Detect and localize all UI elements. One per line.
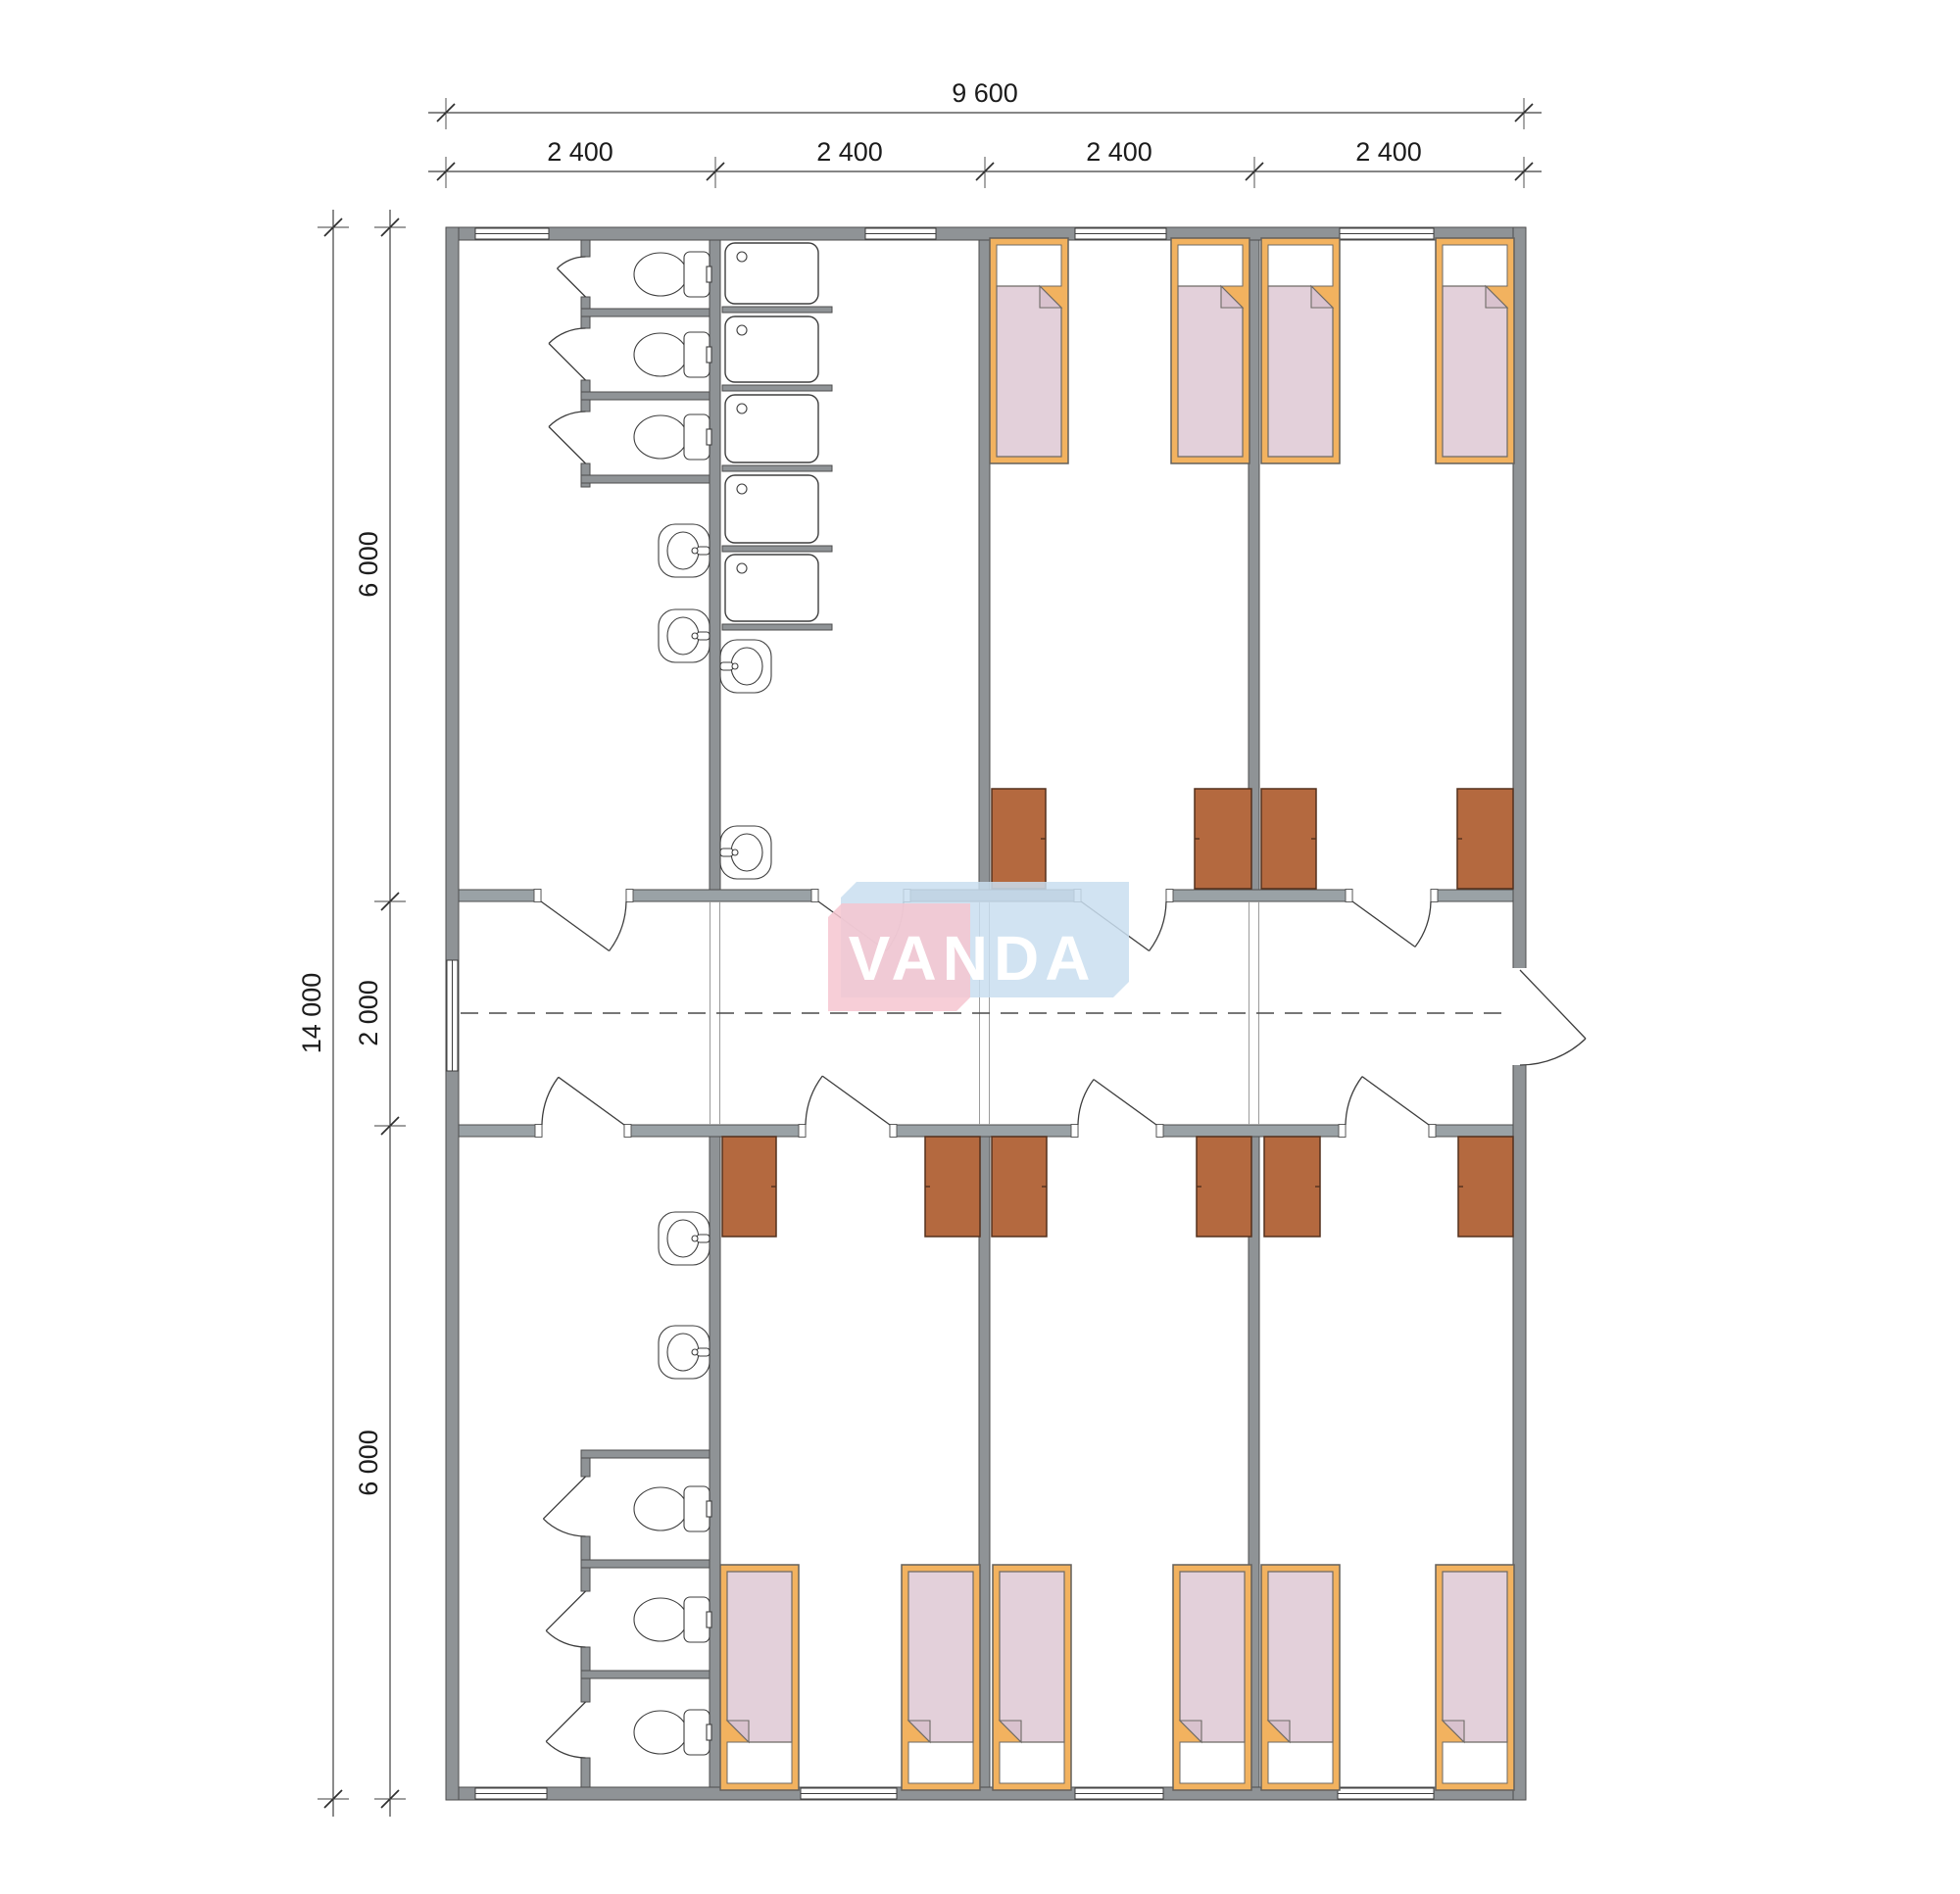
wardrobe: [1261, 789, 1316, 889]
dim-label-zone: 6 000: [354, 531, 383, 598]
door-swing: [549, 412, 586, 463]
door-swing: [1078, 1080, 1156, 1125]
bed: [1261, 238, 1340, 463]
sink: [659, 1212, 710, 1265]
sink: [720, 826, 771, 879]
bed: [902, 1565, 980, 1790]
window: [801, 1788, 897, 1799]
bed: [1436, 1565, 1514, 1790]
sink: [659, 524, 710, 577]
wardrobe: [1458, 1137, 1513, 1237]
floor-plan-canvas: 9 600 2 400 2 400 2 400 2 400 14 000 6 0…: [0, 0, 1960, 1894]
wardrobe: [1264, 1137, 1320, 1237]
window: [1075, 1788, 1163, 1799]
toilet: [634, 414, 711, 460]
entrance-opening: [1512, 968, 1527, 1065]
beds: [720, 238, 1514, 1790]
door-swing: [549, 328, 586, 380]
window: [865, 228, 936, 239]
shower-tray: [725, 316, 818, 382]
entrance-door: [1520, 970, 1586, 1065]
door-swing: [806, 1076, 890, 1125]
dim-label-module: 2 400: [816, 137, 883, 167]
wardrobe: [1195, 789, 1251, 889]
shower-tray: [725, 475, 818, 543]
bed: [990, 238, 1068, 463]
window: [1338, 1788, 1434, 1799]
window: [475, 228, 549, 239]
door-swing: [543, 1477, 585, 1536]
wardrobe: [992, 789, 1046, 889]
shower-tray: [725, 243, 818, 304]
door-swing: [1346, 1077, 1429, 1125]
dimension-left: 14 000 6 000 2 000 6 000: [297, 210, 406, 1817]
window: [447, 960, 458, 1071]
bed: [1261, 1565, 1340, 1790]
toilet: [634, 1486, 711, 1531]
door-swing: [558, 257, 586, 297]
window: [1340, 228, 1434, 239]
door-swing: [1352, 901, 1431, 947]
toilet: [634, 1710, 711, 1755]
window: [1075, 228, 1166, 239]
wardrobe: [1457, 789, 1513, 889]
bed: [1171, 238, 1249, 463]
dim-label-module: 2 400: [547, 137, 613, 167]
wardrobe: [925, 1137, 980, 1237]
bed: [993, 1565, 1071, 1790]
wc-stall-doors: [543, 257, 585, 1758]
bed: [1173, 1565, 1251, 1790]
door-swing: [541, 901, 626, 951]
shower-trays: [725, 243, 818, 621]
shower-tray: [725, 395, 818, 462]
sink: [720, 640, 771, 693]
logo-text: VANDA: [849, 923, 1097, 994]
dim-label-zone: 6 000: [354, 1430, 383, 1496]
floor-plan-page: 9 600 2 400 2 400 2 400 2 400 14 000 6 0…: [0, 0, 1960, 1894]
wardrobe: [1197, 1137, 1251, 1237]
toilet: [634, 1597, 711, 1642]
dim-label-corridor: 2 000: [354, 980, 383, 1046]
door-swing: [546, 1702, 585, 1758]
door-swing: [546, 1591, 585, 1647]
toilet: [634, 252, 711, 297]
dim-label-module: 2 400: [1086, 137, 1152, 167]
bed: [1436, 238, 1514, 463]
door-swing: [542, 1077, 624, 1125]
wardrobe: [722, 1137, 776, 1237]
dimension-top: 9 600 2 400 2 400 2 400 2 400: [428, 78, 1542, 188]
window: [475, 1788, 547, 1799]
dim-label-module: 2 400: [1355, 137, 1422, 167]
toilet: [634, 332, 711, 377]
shower-tray: [725, 555, 818, 621]
bed: [720, 1565, 799, 1790]
sink: [659, 609, 710, 662]
vanda-logo: VANDA: [828, 882, 1129, 1011]
dim-label-total-height: 14 000: [297, 973, 326, 1054]
dim-label-total-width: 9 600: [952, 78, 1018, 108]
sink: [659, 1326, 710, 1379]
wardrobe: [992, 1137, 1047, 1237]
